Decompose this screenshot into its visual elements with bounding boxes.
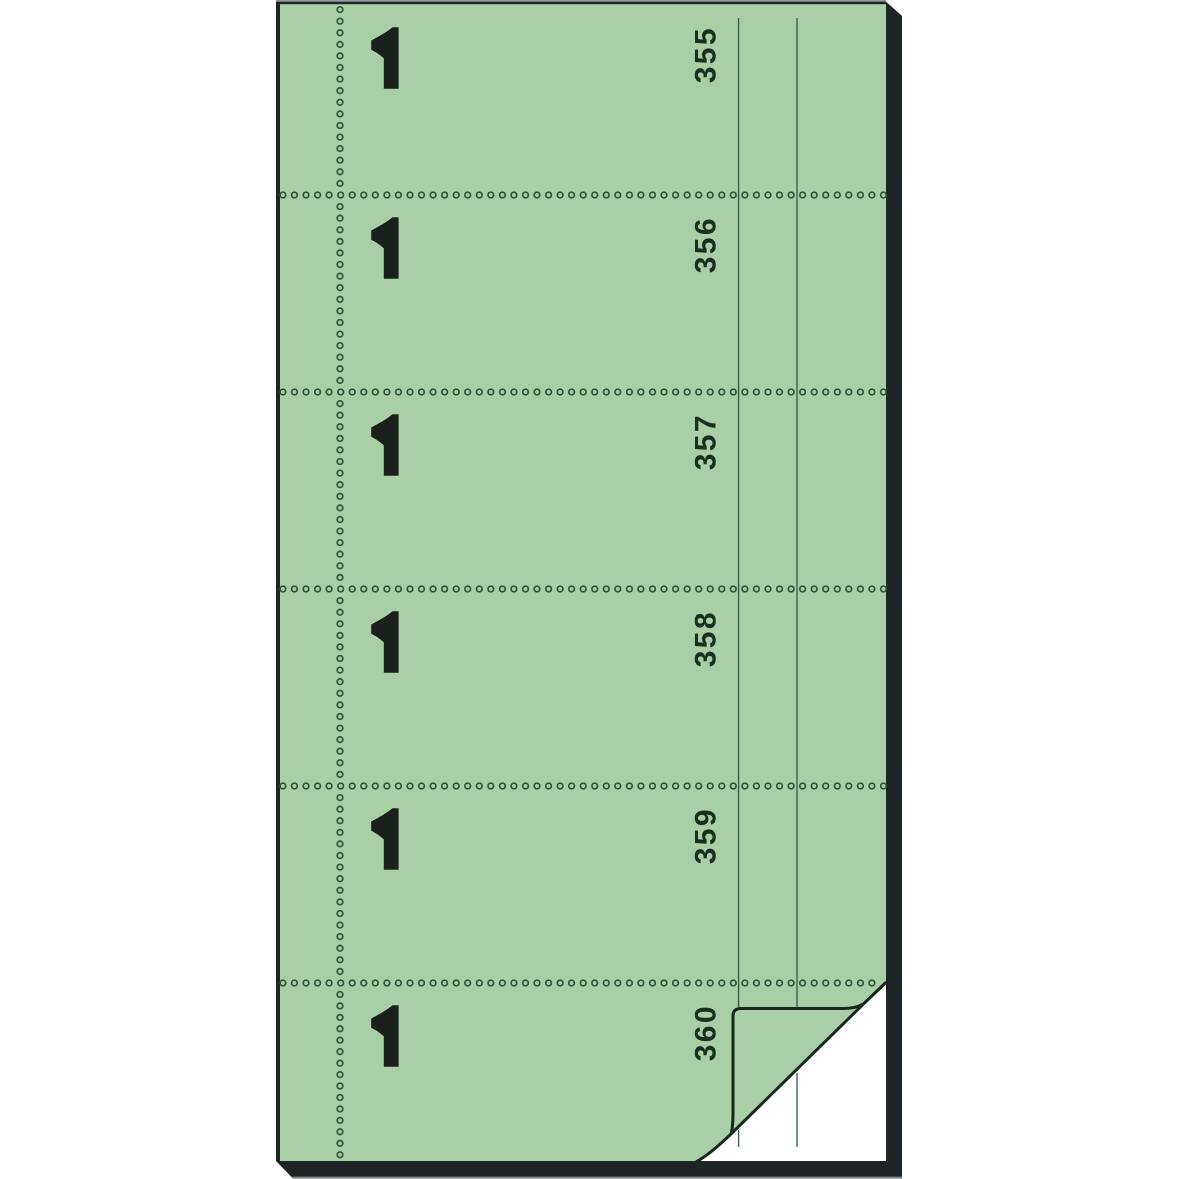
svg-text:357: 357 <box>689 413 722 470</box>
svg-text:359: 359 <box>689 807 722 864</box>
svg-text:356: 356 <box>689 216 722 273</box>
svg-text:355: 355 <box>689 26 722 83</box>
svg-text:358: 358 <box>689 610 722 667</box>
svg-text:360: 360 <box>689 1004 722 1061</box>
